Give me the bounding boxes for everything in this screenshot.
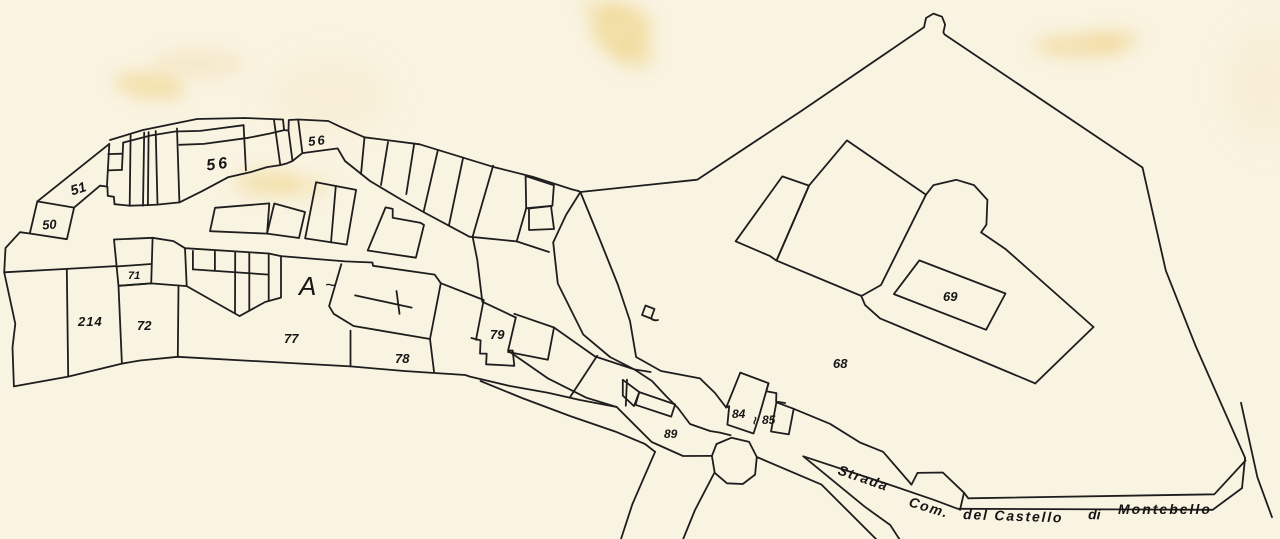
svg-text:214: 214 <box>77 314 103 329</box>
svg-text:69: 69 <box>943 289 958 304</box>
svg-text:79: 79 <box>490 327 505 342</box>
svg-text:A: A <box>297 271 316 301</box>
svg-text:~: ~ <box>325 275 336 295</box>
svg-text:78: 78 <box>395 351 410 366</box>
svg-text:56: 56 <box>205 154 231 174</box>
svg-text:50: 50 <box>42 217 58 233</box>
svg-text:89: 89 <box>664 427 678 441</box>
svg-text:85: 85 <box>762 413 776 427</box>
svg-text:68: 68 <box>833 356 848 371</box>
svg-text:72: 72 <box>137 318 152 333</box>
svg-text:84: 84 <box>732 407 746 421</box>
svg-text:di: di <box>1088 506 1102 522</box>
svg-text:56: 56 <box>307 132 327 149</box>
svg-text:77: 77 <box>284 331 299 346</box>
svg-text:71: 71 <box>128 270 140 282</box>
svg-text:Montebello: Montebello <box>1118 501 1212 517</box>
